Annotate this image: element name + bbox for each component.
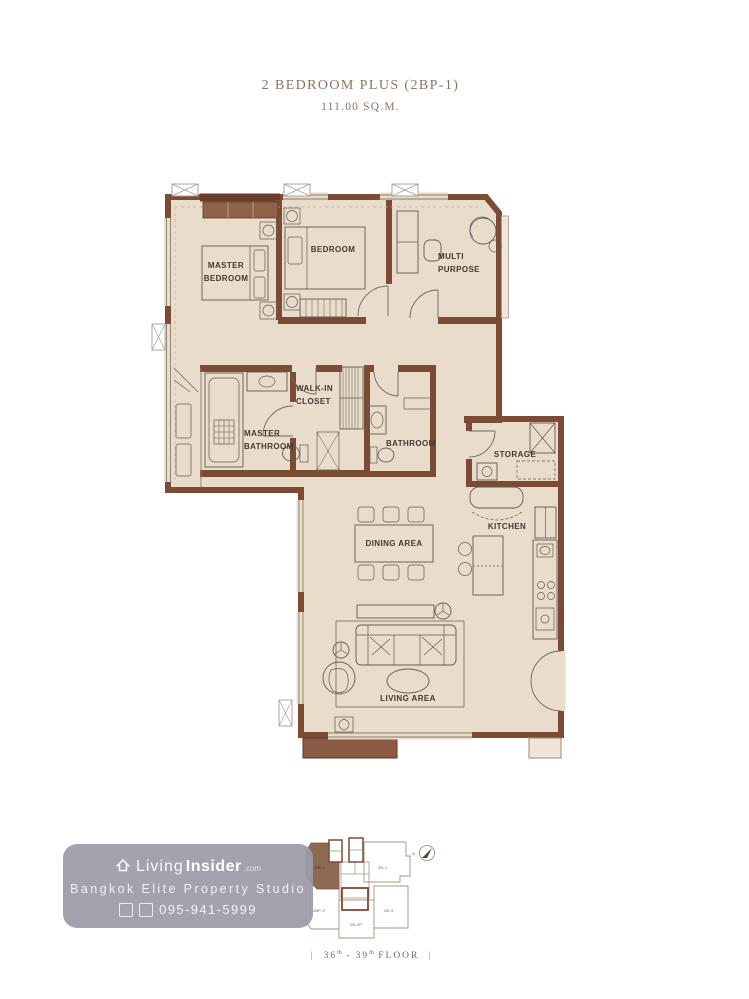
window-living-left-2 (297, 612, 306, 704)
brand-prefix: Living (136, 858, 184, 876)
keyplan: 2BP-1 2B-1 2BP-2 2B-2P 2B-4 N (297, 830, 442, 948)
keyplan-label-2bp1: 2BP-1 (314, 865, 326, 870)
keyplan-unit-2b1 (364, 842, 410, 882)
balcony-ledge (303, 738, 397, 758)
keyplan-label-2b2p: 2B-2P (350, 922, 362, 927)
floor-note: |36th - 39th FLOOR| (0, 950, 746, 961)
wall-thick-top-left (200, 194, 280, 202)
watermark-phone: 095-941-5999 (159, 902, 257, 917)
watermark-phone-row: 095-941-5999 (119, 902, 257, 917)
floorplan-page: 2 BEDROOM PLUS (2BP-1) 111.00 SQ.M. (0, 0, 749, 999)
label-walk-in-closet-2: CLOSET (296, 397, 331, 406)
label-multi-purpose-1: MULTI (438, 252, 464, 261)
floor-note-middle: - 39 (346, 951, 369, 961)
label-living-area: LIVING AREA (380, 694, 436, 703)
label-master-bedroom-1: MASTER (208, 261, 244, 270)
plan-area: 111.00 SQ.M. (0, 101, 735, 113)
label-master-bedroom-2: BEDROOM (204, 274, 249, 283)
label-dining-area: DINING AREA (366, 539, 423, 548)
floor-note-middle-sup: th (369, 950, 374, 956)
label-multi-purpose-2: PURPOSE (438, 265, 480, 274)
phone-app-icon (139, 903, 153, 917)
floorplan-drawing: MASTER BEDROOM BEDROOM (148, 178, 568, 772)
floor-note-end: FLOOR (378, 951, 419, 961)
label-master-bathroom-1: MASTER (244, 429, 280, 438)
ac-ledge-right (502, 216, 509, 318)
ac-ledge-bottom-right (529, 738, 561, 758)
label-kitchen: KITCHEN (488, 522, 526, 531)
keyplan-label-2bp2: 2BP-2 (313, 908, 326, 913)
closet-icon (203, 202, 278, 218)
floor-note-bar-right: | (428, 951, 432, 961)
label-bathroom: BATHROOM (386, 439, 436, 448)
floor-note-start-sup: th (337, 950, 342, 956)
label-storage: STORAGE (494, 450, 536, 459)
keyplan-label-2b1: 2B-1 (378, 865, 388, 870)
line-app-icon (119, 903, 133, 917)
watermark-card: LivingInsider.com Bangkok Elite Property… (63, 844, 313, 928)
watermark-studio: Bangkok Elite Property Studio (70, 882, 306, 896)
label-master-bathroom-2: BATHROOM (244, 442, 294, 451)
floor-note-bar-left: | (311, 951, 315, 961)
keyplan-unit-2b4 (374, 886, 408, 928)
plan-title: 2 BEDROOM PLUS (2BP-1) (0, 78, 735, 94)
brand-suffix: .com (244, 864, 261, 873)
keyplan-label-2b4: 2B-4 (384, 908, 394, 913)
window-living-left-1 (297, 500, 306, 592)
floor-note-start: 36 (324, 951, 338, 961)
keyplan-shafts (329, 838, 363, 862)
north-label: N (412, 851, 415, 856)
label-bedroom: BEDROOM (311, 245, 356, 254)
house-logo-icon (115, 857, 131, 873)
brand-bold: Insider (186, 858, 242, 876)
north-arrow-icon: N (412, 846, 435, 861)
plan-title-block: 2 BEDROOM PLUS (2BP-1) 111.00 SQ.M. (0, 78, 735, 113)
window-left-upper (164, 218, 173, 306)
watermark-brand: LivingInsider.com (115, 855, 261, 876)
label-walk-in-closet-1: WALK-IN (296, 384, 333, 393)
